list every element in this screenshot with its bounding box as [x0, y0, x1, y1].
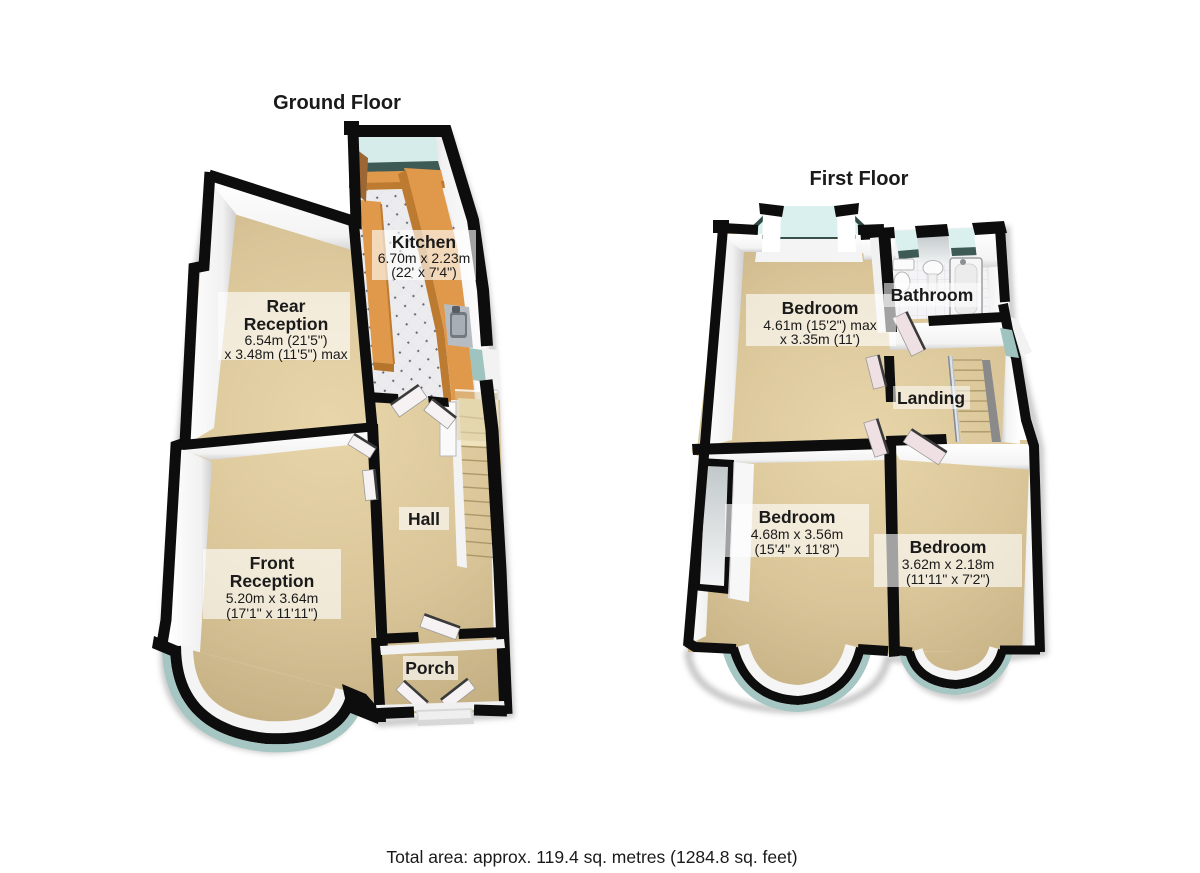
- svg-text:Bedroom: Bedroom: [759, 507, 836, 527]
- svg-text:Reception: Reception: [244, 314, 329, 334]
- svg-text:x 3.35m (11'): x 3.35m (11'): [780, 331, 860, 347]
- svg-text:Reception: Reception: [230, 571, 315, 591]
- svg-text:Bedroom: Bedroom: [910, 537, 987, 557]
- svg-text:Porch: Porch: [405, 658, 455, 678]
- svg-text:Rear: Rear: [267, 296, 306, 316]
- svg-text:Total area: approx. 119.4 sq.: Total area: approx. 119.4 sq. metres (12…: [386, 847, 797, 867]
- svg-text:(11'11" x 7'2"): (11'11" x 7'2"): [906, 571, 990, 587]
- svg-text:(22' x 7'4"): (22' x 7'4"): [391, 264, 457, 280]
- svg-text:4.68m x 3.56m: 4.68m x 3.56m: [751, 526, 844, 542]
- svg-text:Bathroom: Bathroom: [891, 285, 974, 305]
- svg-text:Ground Floor: Ground Floor: [273, 92, 401, 114]
- svg-text:x 3.48m (11'5") max: x 3.48m (11'5") max: [224, 346, 347, 362]
- svg-text:5.20m x 3.64m: 5.20m x 3.64m: [226, 590, 319, 606]
- svg-text:3.62m x 2.18m: 3.62m x 2.18m: [902, 556, 995, 572]
- svg-text:First Floor: First Floor: [810, 168, 909, 190]
- svg-text:Hall: Hall: [408, 509, 440, 529]
- svg-text:Bedroom: Bedroom: [782, 298, 859, 318]
- svg-text:Landing: Landing: [897, 388, 965, 408]
- svg-text:(17'1" x 11'11"): (17'1" x 11'11"): [226, 605, 318, 621]
- svg-text:(15'4" x 11'8"): (15'4" x 11'8"): [754, 541, 839, 557]
- svg-text:Front: Front: [250, 553, 295, 573]
- svg-text:Kitchen: Kitchen: [392, 232, 456, 252]
